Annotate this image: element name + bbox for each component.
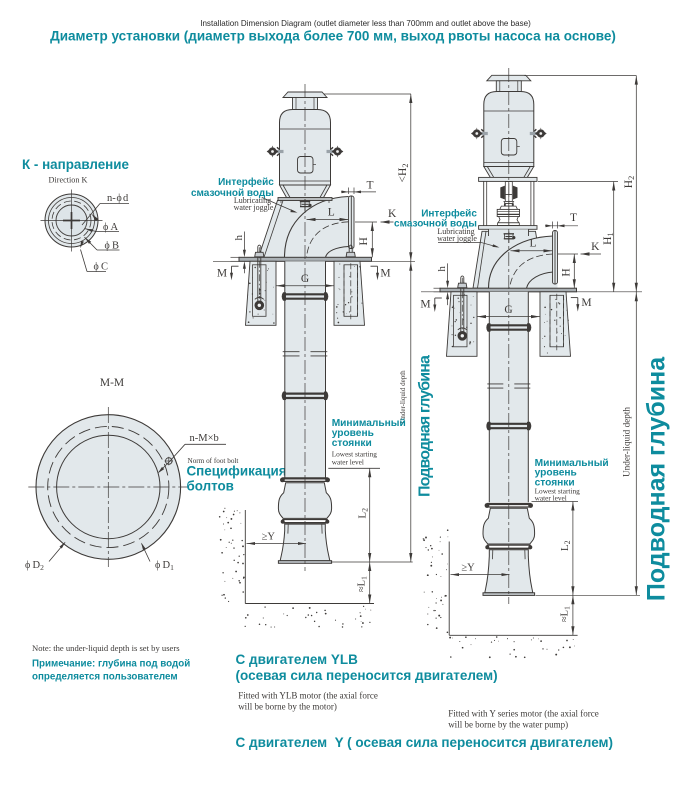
- svg-text:Спецификация: Спецификация: [187, 464, 287, 479]
- svg-text:С двигателем YLB: С двигателем YLB: [236, 652, 359, 667]
- svg-text:стоянки: стоянки: [332, 438, 372, 449]
- svg-text:ϕ: ϕ: [117, 193, 122, 204]
- svg-text:L: L: [328, 207, 335, 219]
- svg-text:≥Y: ≥Y: [262, 532, 276, 543]
- svg-text:T: T: [570, 212, 577, 224]
- svg-text:T: T: [366, 180, 373, 192]
- svg-text:h: h: [436, 266, 448, 272]
- svg-text:Direction K: Direction K: [49, 176, 88, 185]
- svg-text:С двигателем Y ( осевая сила: С двигателем Y ( осевая сила переносится…: [236, 735, 614, 750]
- svg-text:G: G: [301, 273, 309, 285]
- svg-text:(осевая сила переносится двига: (осевая сила переносится двигателем): [236, 668, 498, 683]
- svg-text:d: d: [123, 193, 129, 204]
- svg-text:C: C: [101, 262, 108, 273]
- svg-text:болтов: болтов: [187, 479, 234, 494]
- svg-text:H: H: [358, 237, 370, 245]
- svg-text:water joggle: water joggle: [234, 203, 274, 212]
- svg-text:n-M×b: n-M×b: [190, 433, 219, 444]
- svg-text:Under-liquid depth: Under-liquid depth: [399, 370, 407, 424]
- svg-text:Подводная глубина: Подводная глубина: [643, 356, 671, 601]
- svg-text:n-: n-: [107, 193, 116, 204]
- svg-text:Диаметр установки (диаметр вых: Диаметр установки (диаметр выхода более …: [50, 29, 616, 44]
- svg-text:Fitted with Y series motor (th: Fitted with Y series motor (the axial fo…: [448, 709, 599, 719]
- svg-text:Installation Dimension Diagram: Installation Dimension Diagram (outlet d…: [200, 19, 531, 28]
- svg-text:ϕ: ϕ: [25, 560, 30, 571]
- svg-text:M: M: [380, 268, 390, 280]
- svg-text:ϕ: ϕ: [155, 560, 160, 571]
- svg-text:К - направление: К - направление: [22, 157, 129, 172]
- svg-text:will be borne by the motor): will be borne by the motor): [238, 702, 337, 712]
- svg-text:Fitted with YLB motor (the axi: Fitted with YLB motor (the axial force: [238, 691, 378, 701]
- svg-text:water level: water level: [535, 494, 567, 503]
- svg-text:≥Y: ≥Y: [461, 563, 475, 574]
- svg-text:water joggle: water joggle: [437, 234, 477, 243]
- svg-text:определяется пользователем: определяется пользователем: [32, 672, 178, 683]
- svg-text:Under-liquid depth: Under-liquid depth: [622, 407, 632, 477]
- svg-text:M: M: [581, 297, 591, 309]
- svg-text:G: G: [504, 304, 512, 316]
- svg-text:M: M: [420, 299, 430, 311]
- svg-text:M-M: M-M: [100, 377, 124, 389]
- svg-text:K: K: [591, 241, 600, 253]
- svg-text:ϕ: ϕ: [94, 262, 99, 273]
- svg-text:M: M: [217, 268, 227, 280]
- svg-text:H: H: [561, 268, 573, 276]
- svg-text:will be borne by the water pum: will be borne by the water pump): [448, 720, 568, 730]
- svg-text:h: h: [233, 234, 245, 240]
- svg-text:Подводная глубина: Подводная глубина: [417, 355, 434, 497]
- svg-text:Интерфейс: Интерфейс: [218, 176, 274, 188]
- svg-text:Примечание: глубина под водой: Примечание: глубина под водой: [32, 659, 190, 670]
- svg-text:Note: the under-liquid depth i: Note: the under-liquid depth is set by u…: [32, 643, 180, 653]
- svg-text:water level: water level: [332, 457, 364, 466]
- svg-text:L: L: [529, 238, 536, 250]
